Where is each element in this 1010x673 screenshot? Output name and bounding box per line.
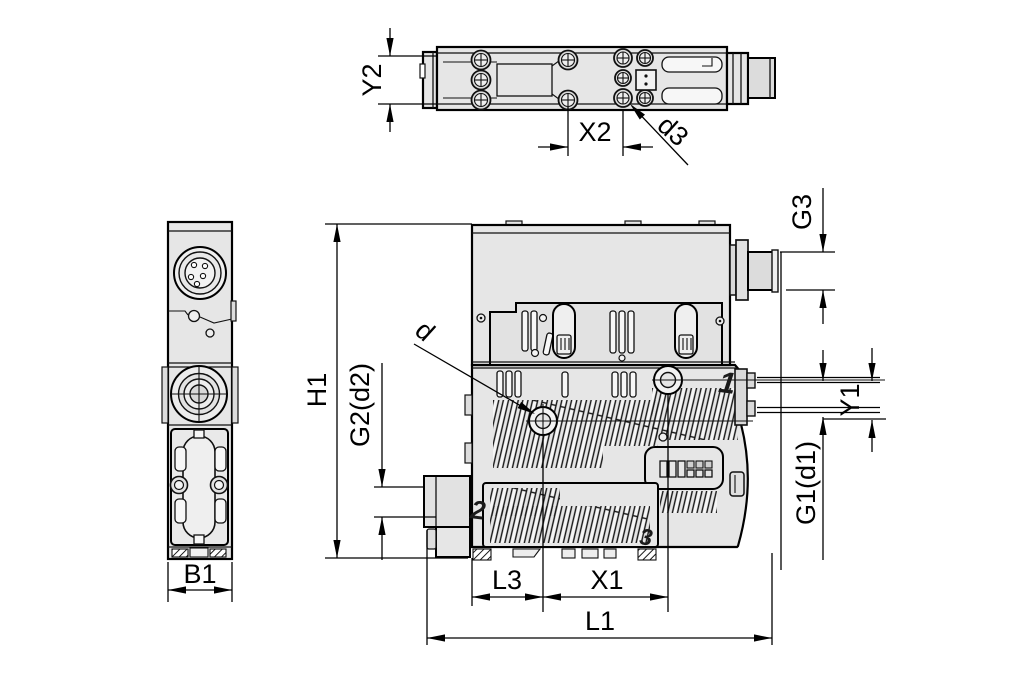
dim-label-g2d2: G2(d2) (345, 363, 375, 447)
silencer-inset (483, 483, 658, 547)
top-view-slot-2 (662, 88, 722, 104)
override-button-2 (675, 304, 697, 358)
top-view-connector-flange (727, 53, 748, 104)
dim-label-h1: H1 (302, 373, 332, 408)
technical-drawing-canvas: Y2 X2 d3 (0, 0, 1010, 673)
vent-slats-upper-left (493, 446, 603, 468)
silencer-knob (171, 366, 227, 422)
vent-slats-upper (493, 400, 658, 446)
vacuum-ejector-technical-drawing: Y2 X2 d3 (0, 0, 1010, 673)
side-view-bottom-block (171, 429, 229, 545)
dim-label-d: d (409, 315, 440, 347)
side-view (162, 222, 238, 559)
top-view-left-connector (423, 52, 437, 108)
dim-label-y1: Y1 (835, 383, 865, 416)
top-view-square-port (636, 70, 656, 90)
dim-label-l1: L1 (585, 606, 615, 636)
top-view-screws-left (472, 51, 491, 110)
dim-label-g3: G3 (787, 194, 817, 230)
top-view (420, 47, 775, 110)
side-view-dimensions: B1 (168, 559, 232, 602)
dim-label-x2: X2 (578, 117, 611, 147)
dim-label-g1d1: G1(d1) (791, 441, 821, 525)
dim-label-b1: B1 (183, 559, 216, 589)
dim-label-d3: d3 (652, 110, 694, 152)
top-view-connector-barrel (748, 58, 775, 98)
dim-label-x1: X1 (590, 565, 623, 595)
dim-label-l3: L3 (492, 565, 522, 595)
override-button-1 (553, 304, 575, 358)
m12-connector-face (174, 247, 226, 299)
port1-fitting (735, 369, 755, 425)
dim-label-y2: Y2 (357, 63, 387, 96)
m12-connector-side (730, 240, 778, 300)
top-view-slot-1 (662, 57, 722, 72)
